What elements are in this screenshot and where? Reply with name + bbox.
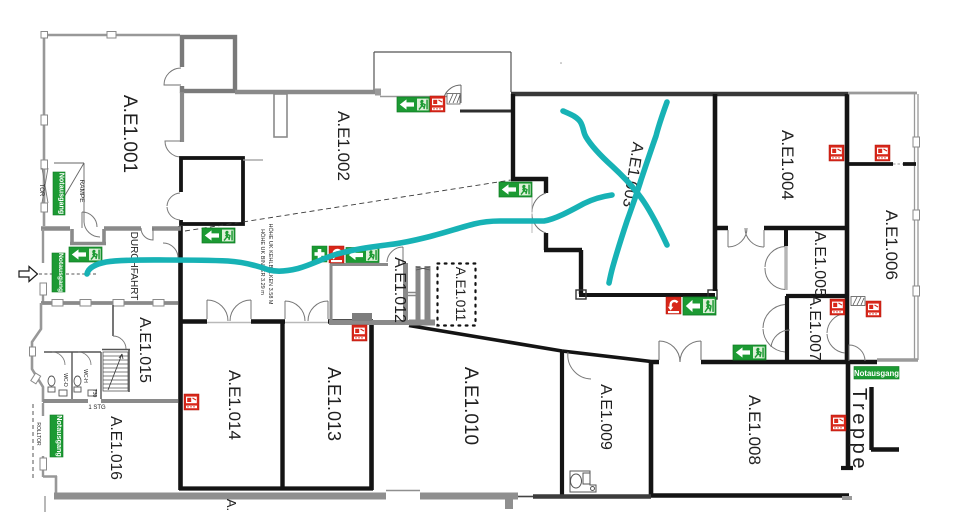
svg-text:WC-H: WC-H [82, 369, 88, 383]
svg-text:A.E1.006: A.E1.006 [882, 210, 901, 280]
svg-text:HÖHE UK KEHLBALKEN 3.58 M: HÖHE UK KEHLBALKEN 3.58 M [267, 223, 274, 304]
svg-text:A.E1.005: A.E1.005 [811, 231, 828, 297]
svg-text:A.E1.010: A.E1.010 [460, 367, 481, 445]
svg-text:A.E1.008: A.E1.008 [745, 395, 764, 465]
svg-text:ROLLTOR: ROLLTOR [35, 422, 41, 446]
svg-text:A.E1.011: A.E1.011 [453, 267, 468, 322]
svg-text:A.E1.009: A.E1.009 [597, 384, 614, 450]
svg-text:HÖHE UK BINDER 3.29 m: HÖHE UK BINDER 3.29 m [259, 229, 266, 295]
svg-text:TOR: TOR [38, 184, 44, 197]
svg-text:Notausgang: Notausgang [55, 415, 64, 457]
svg-text:A.E1.015: A.E1.015 [136, 317, 153, 383]
svg-text:1 STG: 1 STG [88, 405, 106, 411]
svg-text:Treppe: Treppe [848, 388, 870, 472]
svg-text:A.: A. [224, 499, 239, 511]
svg-text:A.E1.016: A.E1.016 [107, 416, 124, 480]
svg-text:Notausgang: Notausgang [57, 253, 64, 292]
svg-text:A.E1.013: A.E1.013 [324, 367, 344, 441]
svg-text:A.E1.007: A.E1.007 [806, 295, 823, 361]
svg-text:Notausgang: Notausgang [57, 173, 66, 215]
svg-text:Notausgang: Notausgang [854, 369, 899, 378]
svg-text:A.E1.001: A.E1.001 [119, 95, 140, 173]
svg-text:A.E1.002: A.E1.002 [334, 111, 353, 181]
svg-text:A.E1.014: A.E1.014 [225, 370, 244, 440]
svg-text:A.E1.012: A.E1.012 [391, 257, 408, 323]
svg-text:DURCHFAHRT: DURCHFAHRT [128, 232, 139, 301]
svg-text:A.E1.004: A.E1.004 [778, 130, 797, 200]
svg-text:RAMPE: RAMPE [78, 179, 85, 203]
svg-text:WC-D: WC-D [62, 373, 68, 387]
svg-text:T30: T30 [91, 389, 97, 398]
